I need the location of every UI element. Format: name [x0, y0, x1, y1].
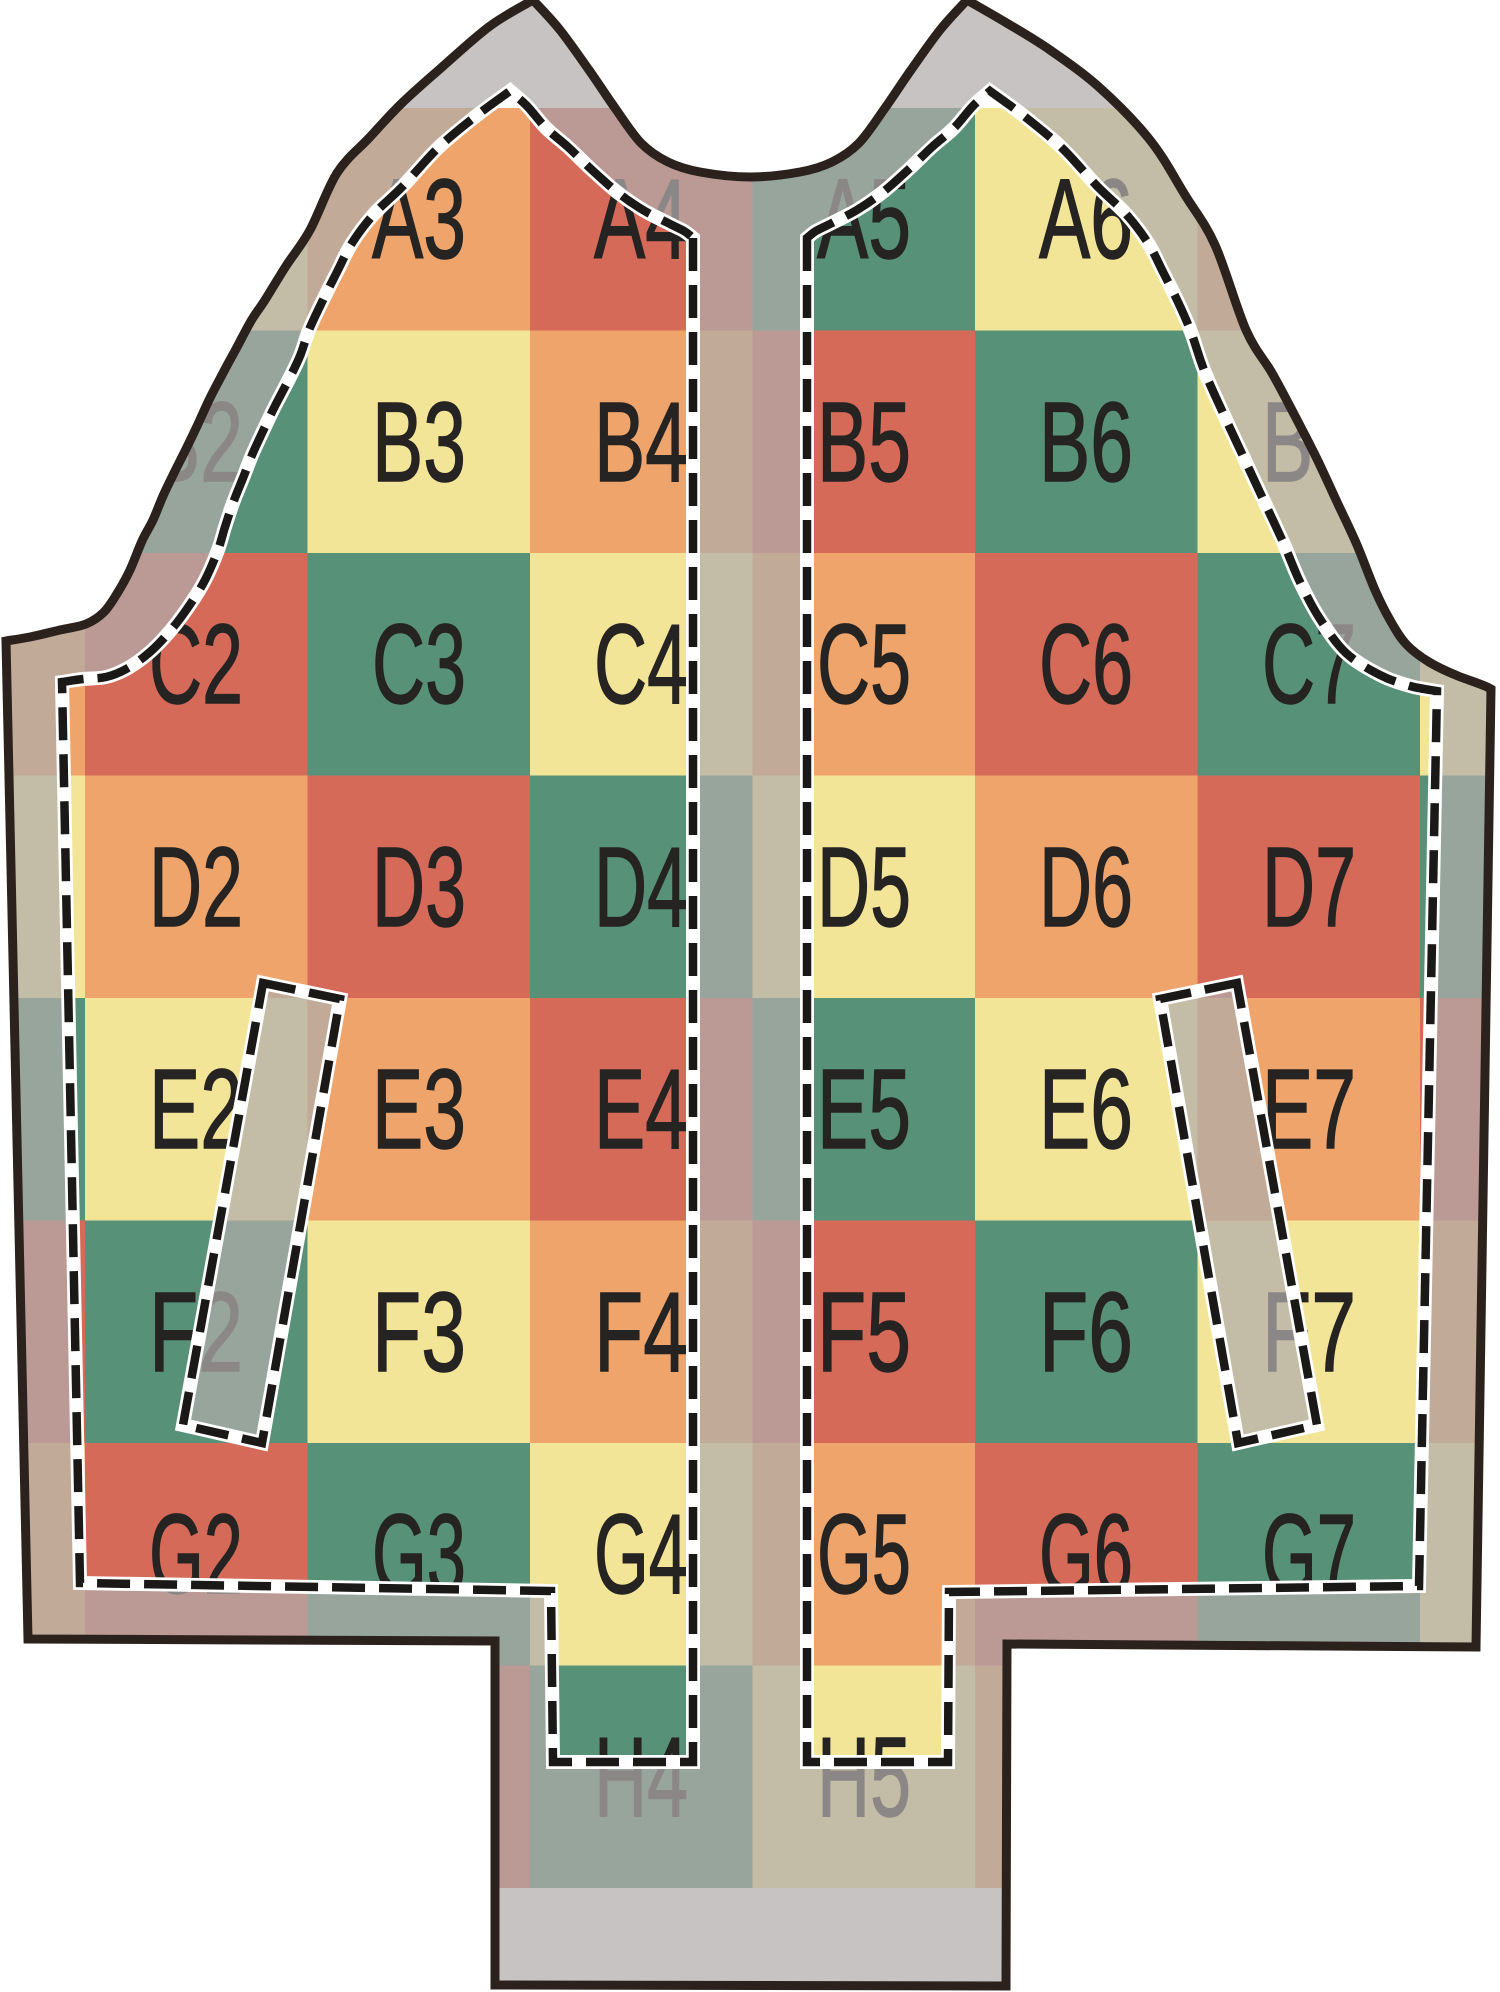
svg-text:C4: C4 — [594, 601, 688, 727]
svg-text:G4: G4 — [594, 1491, 688, 1617]
svg-text:D5: D5 — [817, 824, 911, 950]
svg-text:B4: B4 — [594, 379, 688, 505]
svg-text:B5: B5 — [817, 379, 911, 505]
svg-text:E4: E4 — [594, 1046, 688, 1172]
svg-text:D6: D6 — [1039, 824, 1133, 950]
svg-text:C5: C5 — [817, 601, 911, 727]
svg-text:F4: F4 — [594, 1269, 688, 1395]
svg-text:E5: E5 — [817, 1046, 911, 1172]
svg-text:F3: F3 — [372, 1269, 466, 1395]
svg-text:B3: B3 — [372, 379, 466, 505]
svg-text:D7: D7 — [1262, 824, 1356, 950]
svg-text:E3: E3 — [372, 1046, 466, 1172]
svg-text:D4: D4 — [594, 824, 688, 950]
svg-text:D2: D2 — [149, 824, 243, 950]
svg-text:E7: E7 — [1262, 1046, 1356, 1172]
svg-text:C3: C3 — [372, 601, 466, 727]
svg-text:E6: E6 — [1039, 1046, 1133, 1172]
svg-text:F6: F6 — [1039, 1269, 1133, 1395]
svg-text:B6: B6 — [1039, 379, 1133, 505]
svg-text:F5: F5 — [817, 1269, 911, 1395]
svg-text:C6: C6 — [1039, 601, 1133, 727]
svg-text:D3: D3 — [372, 824, 466, 950]
svg-text:G5: G5 — [817, 1491, 911, 1617]
